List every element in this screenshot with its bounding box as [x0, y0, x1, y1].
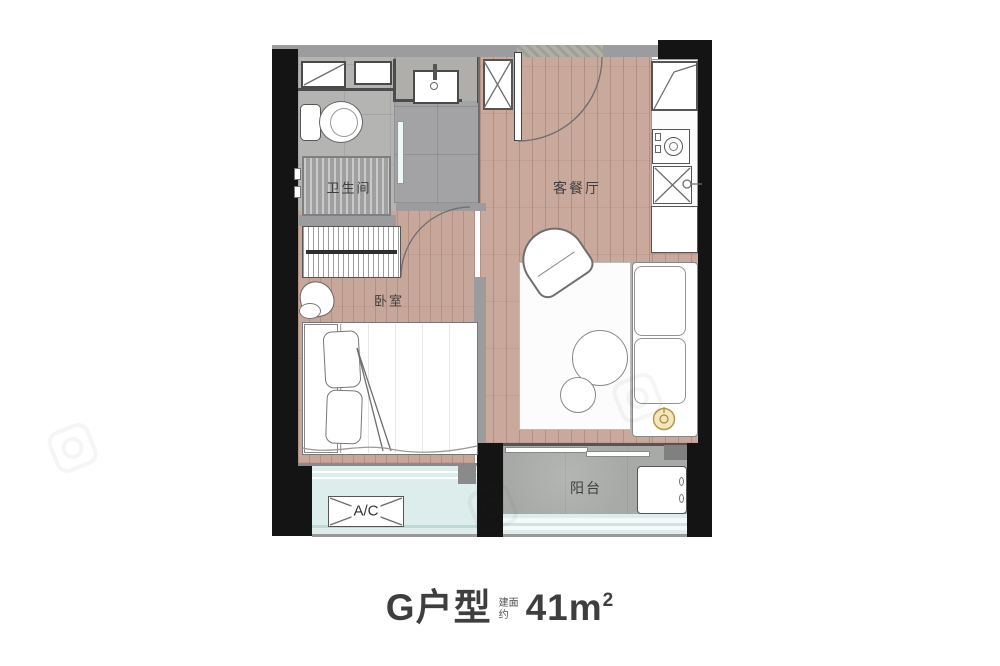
- ac-platform-glass-line-2: [312, 477, 477, 479]
- bathroom-sliding-door: [397, 121, 404, 184]
- bedroom-stool: [299, 303, 321, 319]
- unit-name: G户型: [386, 589, 492, 626]
- basin-nook-border-left: [393, 59, 396, 102]
- toilet-tank: [300, 104, 321, 141]
- wall-center-bottom: [477, 443, 503, 537]
- washer-control-1: [655, 133, 661, 141]
- entry-shaft-box: [483, 59, 513, 110]
- towel-bar-1: [294, 168, 301, 180]
- balcony-appliance: [637, 466, 687, 514]
- bath-cabinet-1: [301, 61, 346, 88]
- washbasin-faucet: [433, 64, 437, 80]
- pillow-1: [323, 330, 362, 389]
- area-exponent: 2: [603, 590, 615, 611]
- washer-drum-inner: [669, 142, 678, 151]
- area-value: 41m2: [526, 589, 615, 626]
- bathroom-box-baseline: [298, 88, 396, 91]
- sofa-cushion-2: [634, 338, 686, 404]
- wardrobe: [302, 226, 401, 278]
- sofa-cushion-1: [634, 266, 686, 336]
- balcony-appliance-knob-2: [679, 494, 684, 503]
- label-living-dining: 客餐厅: [553, 178, 601, 198]
- balcony-appliance-knob-1: [679, 477, 684, 486]
- ac-platform-glass-line-1: [312, 471, 477, 473]
- bath-cabinet-2: [354, 61, 392, 85]
- balcony-top-line: [503, 443, 687, 446]
- kitchen-sink: [653, 166, 692, 204]
- pillow-2: [325, 389, 363, 444]
- balcony-window-band: [503, 514, 687, 534]
- area-label-line2: 约: [499, 610, 519, 622]
- plan-title: G户型 建面 约 41m2: [386, 589, 614, 626]
- label-balcony: 阳台: [570, 478, 602, 498]
- wall-bedroom-top: [396, 203, 486, 211]
- label-bathroom: 卫生间: [326, 178, 371, 197]
- balcony-slider-leaf-2: [586, 451, 650, 457]
- kitchen-cabinet-bottom: [651, 206, 698, 253]
- balcony-slider-block: [664, 445, 687, 460]
- floor-plan-page: 卫生间 卧室 客餐厅 阳台 A/C G户型 建面 约 41m2: [0, 0, 1000, 666]
- wall-bathroom-bottom: [298, 215, 396, 226]
- label-ac: A/C: [351, 503, 380, 520]
- coffee-table-small: [560, 377, 596, 413]
- area-label: 建面 约: [499, 598, 519, 626]
- wall-left: [272, 49, 298, 536]
- wardrobe-rail: [306, 250, 397, 254]
- bedroom-window-sill: [298, 463, 477, 466]
- wall-right-bottom: [687, 443, 712, 537]
- entry-threshold: [517, 45, 603, 57]
- balcony-slider-leaf-1: [505, 447, 588, 453]
- ac-platform-bottom-line: [312, 534, 477, 537]
- wall-left-bottom: [272, 466, 312, 536]
- ac-gray-block: [458, 466, 476, 484]
- hall-living-divider: [478, 57, 480, 205]
- label-bedroom: 卧室: [374, 291, 404, 310]
- area-label-line1: 建面: [499, 598, 519, 610]
- washbasin-drain: [430, 82, 438, 90]
- kitchen-cabinet-top: [651, 61, 698, 111]
- towel-bar-2: [294, 186, 301, 198]
- balcony-bottom-line: [503, 534, 687, 537]
- toilet-bowl-inner: [330, 108, 358, 137]
- entry-door-leaf: [514, 52, 522, 141]
- washer-control-2: [655, 145, 661, 153]
